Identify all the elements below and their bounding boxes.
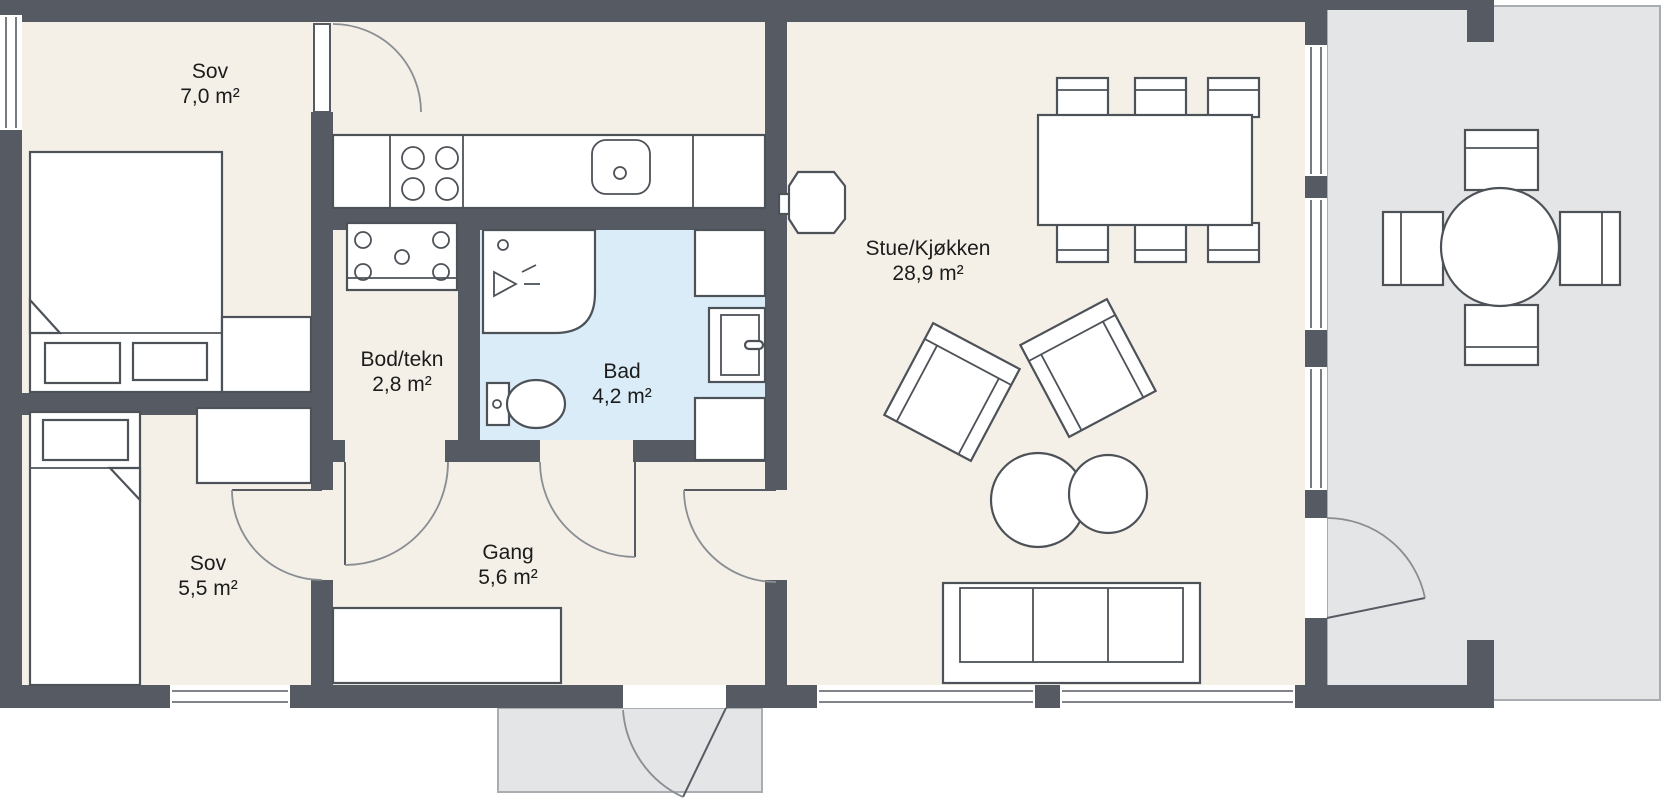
dining-chair	[1208, 223, 1259, 262]
room-name: Sov	[192, 60, 229, 83]
dining-chair	[1135, 78, 1186, 117]
window-south-living-1	[817, 685, 1035, 708]
bedroom2-desk	[197, 408, 311, 483]
room-area: 28,9 m²	[892, 262, 963, 285]
window-east-2	[1305, 198, 1327, 330]
terrace-chair	[1383, 212, 1443, 285]
hall-wardrobe	[333, 608, 561, 683]
room-name: Gang	[482, 541, 533, 564]
bathroom-cabinet	[695, 230, 765, 296]
shower	[483, 230, 595, 333]
dining-chair	[1208, 78, 1259, 117]
terrace-round-table	[1441, 188, 1559, 306]
kitchen-counter	[333, 135, 765, 208]
dining-chair	[1057, 78, 1108, 117]
room-area: 5,6 m²	[478, 566, 538, 589]
room-area: 4,2 m²	[592, 385, 652, 408]
technical-unit	[347, 223, 457, 290]
floor-plan: Sov 7,0 m² Bod/tekn 2,8 m² Bad 4,2 m² St…	[0, 0, 1670, 800]
single-bed	[30, 412, 140, 685]
room-name: Bod/tekn	[361, 348, 444, 371]
window-east-3	[1305, 367, 1327, 490]
pillow	[45, 343, 120, 383]
room-name: Sov	[190, 552, 227, 575]
window-west	[0, 15, 22, 130]
room-area: 5,5 m²	[178, 577, 238, 600]
entry-porch	[498, 708, 762, 792]
pillow	[133, 343, 207, 380]
washing-machine	[709, 308, 765, 382]
dining-table	[1038, 115, 1252, 225]
dining-table-group	[1038, 78, 1259, 262]
window-south-living-2	[1060, 685, 1295, 708]
window-east-1	[1305, 45, 1327, 176]
room-area: 7,0 m²	[180, 85, 240, 108]
floor-plan-canvas: Sov 7,0 m² Bod/tekn 2,8 m² Bad 4,2 m² St…	[0, 0, 1670, 800]
window-south-bedroom	[170, 685, 290, 708]
terrace-door-opening	[1305, 518, 1327, 618]
nightstand	[222, 317, 311, 392]
coffee-table-small	[1069, 455, 1147, 533]
dining-chair	[1135, 223, 1186, 262]
terrace-chair	[1465, 130, 1538, 190]
double-bed	[30, 152, 222, 392]
toilet	[487, 380, 565, 428]
room-name: Stue/Kjøkken	[866, 237, 991, 260]
pillow	[43, 420, 128, 460]
sofa	[943, 583, 1200, 683]
room-area: 2,8 m²	[372, 373, 432, 396]
terrace-chair	[1465, 305, 1538, 365]
room-name: Bad	[603, 360, 640, 383]
bathroom-bench	[695, 398, 765, 460]
dining-chair	[1057, 223, 1108, 262]
terrace-chair	[1560, 212, 1620, 285]
entry-door-opening	[623, 685, 726, 708]
washer-handle	[745, 341, 763, 349]
